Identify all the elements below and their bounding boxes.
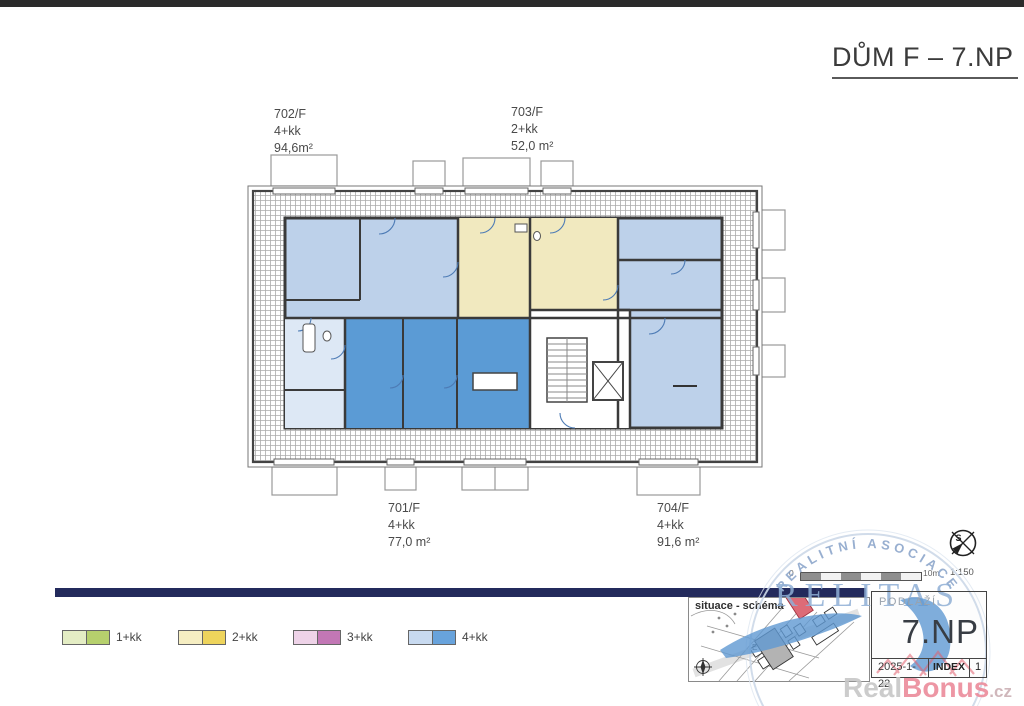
scale-end-label: 10m <box>923 568 940 578</box>
page-title: DŮM F – 7.NP <box>832 42 1014 73</box>
staircase <box>547 338 587 402</box>
apartment-label-702: 702/F4+kk94,6m² <box>274 106 313 156</box>
floor-plan-svg <box>245 150 790 505</box>
apartment-type: 4+kk <box>657 518 684 532</box>
apartment-type: 4+kk <box>274 124 301 138</box>
compass-letter: S <box>956 533 962 543</box>
floor-value: 7.NP <box>902 613 979 651</box>
top-border-bar <box>0 0 1024 7</box>
apartment-id: 703/F <box>511 105 543 119</box>
legend-swatch-3kk <box>293 630 341 645</box>
info-panel: PODLAŽÍ 7.NP 2025-1-22 INDEX 1 <box>871 591 987 678</box>
north-compass-icon: S <box>947 527 979 559</box>
legend-label: 1+kk <box>116 630 142 644</box>
apartment-label-701: 701/F4+kk77,0 m² <box>388 500 430 550</box>
svg-text:REALITNÍ ASOCIACE: REALITNÍ ASOCIACE <box>773 536 963 594</box>
realbonus-watermark: RealBonus.cz <box>843 672 1012 704</box>
legend-label: 2+kk <box>232 630 258 644</box>
apartment-type: 4+kk <box>388 518 415 532</box>
apartment-label-703: 703/F2+kk52,0 m² <box>511 104 553 154</box>
watermark-arc-text: REALITNÍ ASOCIACE <box>773 536 963 594</box>
floor-plan <box>245 150 790 505</box>
elevator <box>593 362 623 400</box>
apartment-label-704: 704/F4+kk91,6 m² <box>657 500 699 550</box>
scale-bar <box>800 572 922 581</box>
site-map-label: situace - schéma <box>695 600 784 612</box>
floor-label: PODLAŽÍ <box>879 596 937 608</box>
apartment-area: 77,0 m² <box>388 535 430 549</box>
legend-swatch-2kk <box>178 630 226 645</box>
realbonus-gray: Real <box>843 672 902 703</box>
scale-ratio: 1:150 <box>950 567 974 578</box>
utility-room <box>473 373 517 390</box>
map-building-e-label: E <box>752 643 757 652</box>
legend-label: 4+kk <box>462 630 488 644</box>
apartment-area: 91,6 m² <box>657 535 699 549</box>
legend-label: 3+kk <box>347 630 373 644</box>
divider-bar <box>55 588 866 597</box>
title-underline <box>832 77 1018 79</box>
apartment-id: 702/F <box>274 107 306 121</box>
site-map-panel: E situace - schéma <box>688 597 870 682</box>
realbonus-tld: .cz <box>989 682 1012 701</box>
scale-start-label: 0 <box>789 568 794 578</box>
realbonus-red: Bonus <box>902 672 989 703</box>
legend-swatch-1kk <box>62 630 110 645</box>
floorplan-sheet: DŮM F – 7.NP 702/F4+kk94,6m² 703/F2+kk52… <box>0 0 1024 706</box>
apartment-type: 2+kk <box>511 122 538 136</box>
legend-swatch-4kk <box>408 630 456 645</box>
